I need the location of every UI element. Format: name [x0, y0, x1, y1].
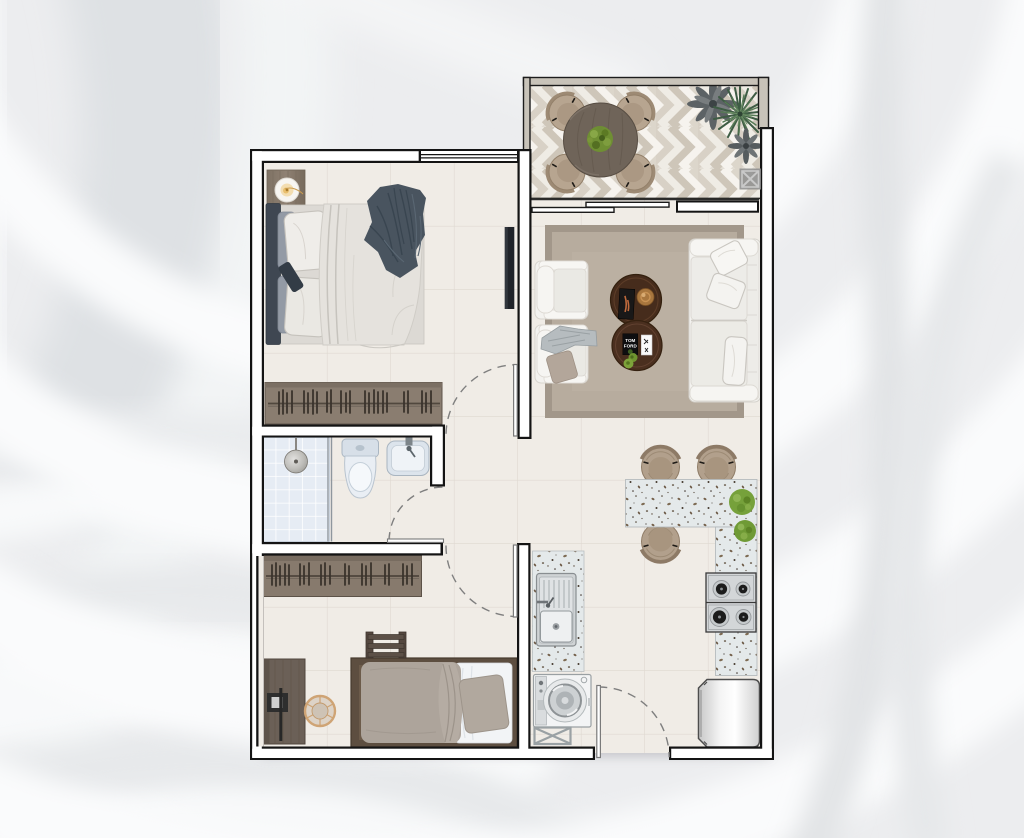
svg-text:FORD: FORD	[624, 344, 638, 349]
svg-text:TOM: TOM	[625, 338, 635, 343]
